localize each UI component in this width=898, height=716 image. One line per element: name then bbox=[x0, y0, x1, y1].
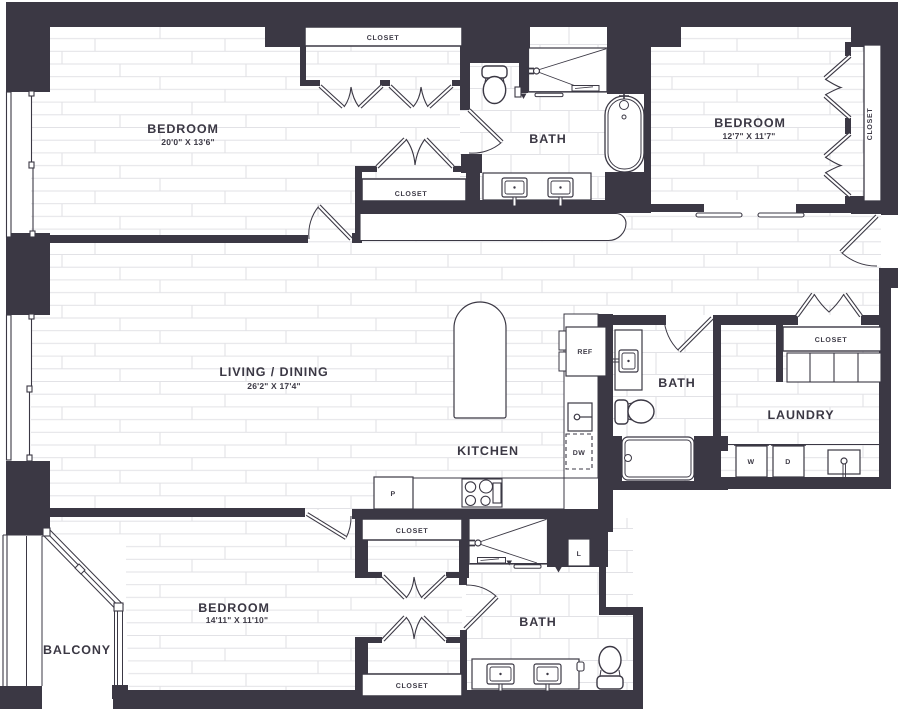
svg-text:LAUNDRY: LAUNDRY bbox=[768, 408, 835, 422]
svg-text:14'11" X 11'10": 14'11" X 11'10" bbox=[206, 615, 268, 625]
svg-text:KITCHEN: KITCHEN bbox=[457, 444, 519, 458]
svg-text:12'7" X 11'7": 12'7" X 11'7" bbox=[723, 131, 776, 141]
svg-text:BATH: BATH bbox=[529, 132, 566, 146]
svg-text:LIVING / DINING: LIVING / DINING bbox=[219, 365, 328, 379]
svg-text:26'2" X 17'4": 26'2" X 17'4" bbox=[247, 381, 300, 391]
svg-text:BATH: BATH bbox=[519, 615, 556, 629]
svg-text:CLOSET: CLOSET bbox=[815, 337, 848, 344]
svg-text:CLOSET: CLOSET bbox=[396, 683, 429, 690]
svg-text:L: L bbox=[577, 551, 582, 558]
svg-text:BATH: BATH bbox=[658, 376, 695, 390]
svg-text:CLOSET: CLOSET bbox=[396, 528, 429, 535]
svg-text:CLOSET: CLOSET bbox=[867, 108, 874, 141]
svg-text:W: W bbox=[747, 459, 754, 466]
svg-text:20'0" X 13'6": 20'0" X 13'6" bbox=[161, 137, 214, 147]
svg-text:DW: DW bbox=[573, 450, 585, 457]
svg-text:BEDROOM: BEDROOM bbox=[198, 601, 270, 615]
svg-text:BEDROOM: BEDROOM bbox=[147, 122, 219, 136]
svg-text:BALCONY: BALCONY bbox=[43, 643, 111, 657]
svg-text:REF: REF bbox=[577, 349, 593, 356]
svg-text:CLOSET: CLOSET bbox=[367, 35, 400, 42]
svg-text:D: D bbox=[785, 459, 790, 466]
svg-text:BEDROOM: BEDROOM bbox=[714, 116, 786, 130]
svg-text:P: P bbox=[390, 491, 395, 498]
svg-text:CLOSET: CLOSET bbox=[395, 191, 428, 198]
